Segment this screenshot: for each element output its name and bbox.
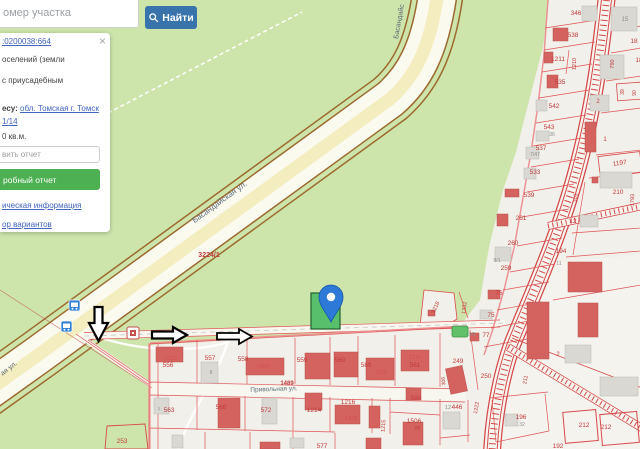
map-label: 1489 <box>280 381 294 387</box>
map-label: 11 <box>556 261 561 267</box>
map-label: 1211 <box>551 56 565 63</box>
map-label: 250 <box>481 373 492 380</box>
map-label: 537 <box>536 145 547 152</box>
map-label: 558 <box>238 356 249 363</box>
map-label: 18 <box>630 38 638 45</box>
cadastral-map-app: Басандайская ул.Басандайсая ул.Привольна… <box>0 0 640 449</box>
map-label: 6404 <box>257 364 269 370</box>
map-label: 192 <box>553 443 564 449</box>
map-label: 559 <box>297 357 308 364</box>
map-label: 90 <box>632 90 638 96</box>
map-label: 561 <box>410 362 421 369</box>
map-label: 539 <box>524 192 535 199</box>
map-label: 1216 <box>341 399 356 406</box>
permitted-use-text: с приусадебным <box>2 76 63 85</box>
map-label: 194 <box>556 248 567 255</box>
map-label: 560 <box>335 357 346 364</box>
map-label: 36 <box>549 132 555 138</box>
search-button[interactable]: Найти <box>145 6 197 29</box>
map-label: 346 <box>571 10 582 17</box>
map-label: 1210 <box>572 58 578 70</box>
map-label: 446 <box>452 404 463 411</box>
map-label: 212 <box>579 422 590 429</box>
land-category-text: оселений (земли <box>2 55 65 64</box>
map-label: 1428 <box>345 416 358 422</box>
map-label: 542 <box>549 103 560 110</box>
map-label: 18 <box>635 57 640 64</box>
map-label: 556 <box>163 362 174 369</box>
map-label: 12 <box>445 405 451 411</box>
map-label: 78 <box>414 426 420 432</box>
map-label: 3224/1 <box>198 252 220 259</box>
map-label: 212 <box>601 424 612 431</box>
landmark-icon[interactable] <box>127 327 139 339</box>
map-label: 1325 <box>165 356 178 362</box>
map-label: 260 <box>508 240 519 247</box>
search-button-label: Найти <box>162 12 193 24</box>
map-label: 32 <box>519 422 525 428</box>
map-label: 261 <box>516 215 527 222</box>
map-label: 76 <box>495 290 503 297</box>
technical-info-link[interactable]: ическая информация <box>2 201 81 210</box>
map-label: 563 <box>164 407 175 414</box>
map-label: 1214 <box>307 407 322 414</box>
map-label: 306 <box>441 376 448 385</box>
map-label: 77 <box>482 332 490 339</box>
bus-stop-icon[interactable] <box>61 321 72 332</box>
map-label: 12 <box>569 218 577 225</box>
detailed-report-button[interactable]: робный отчет <box>0 169 100 190</box>
map-label: 557 <box>205 355 216 362</box>
map-label: 259 <box>501 265 512 272</box>
map-label: 8 <box>210 370 213 376</box>
bus-stop-icon[interactable] <box>69 300 80 311</box>
map-label: 1793 <box>630 194 636 206</box>
map-label: 535 <box>555 79 566 86</box>
map-label: 301 <box>573 193 580 203</box>
address-link-2[interactable]: 1/14 <box>2 117 18 126</box>
map-label: 15 <box>622 17 629 23</box>
map-label: 1/3 <box>469 332 476 338</box>
map-label: 1215 <box>380 420 387 433</box>
map-label: 568 <box>216 404 227 411</box>
map-label: 1506 <box>407 418 422 425</box>
map-label: 196 <box>516 414 527 421</box>
search-icon <box>148 12 159 23</box>
address-label: есу: <box>2 104 18 113</box>
map-label: 39 <box>620 89 626 95</box>
map-label: 1 <box>603 136 607 143</box>
report-email-input[interactable] <box>0 146 100 163</box>
map-label: 7/47 <box>530 152 540 158</box>
green-area-patch <box>452 326 468 337</box>
map-label: 790 <box>610 59 616 68</box>
map-label: 577 <box>317 443 328 449</box>
map-label: 572 <box>261 407 272 414</box>
map-label: 543 <box>544 124 555 131</box>
map-label: 253 <box>117 438 128 445</box>
map-label: 1719 <box>409 355 421 361</box>
area-text: 0 кв.м. <box>2 132 26 141</box>
map-label: 210 <box>613 189 624 196</box>
map-label: 1220 <box>375 370 388 376</box>
close-icon[interactable]: × <box>99 35 106 47</box>
map-label: 589 <box>361 362 372 369</box>
map-label: 9/1 <box>494 258 501 264</box>
variants-link[interactable]: ор вариантов <box>2 220 52 229</box>
search-input[interactable] <box>0 0 139 28</box>
cadastral-number-link[interactable]: :0200038:664 <box>2 37 51 46</box>
map-label: 538 <box>568 32 579 39</box>
map-label: 533 <box>530 169 541 176</box>
map-label: 75 <box>487 312 495 319</box>
map-label: 584 <box>411 395 422 402</box>
address-link[interactable]: обл. Томская г. Томск <box>20 104 99 113</box>
map-label: 249 <box>453 358 464 365</box>
parcel-info-panel: × :0200038:664 оселений (земли с приусад… <box>0 33 110 232</box>
